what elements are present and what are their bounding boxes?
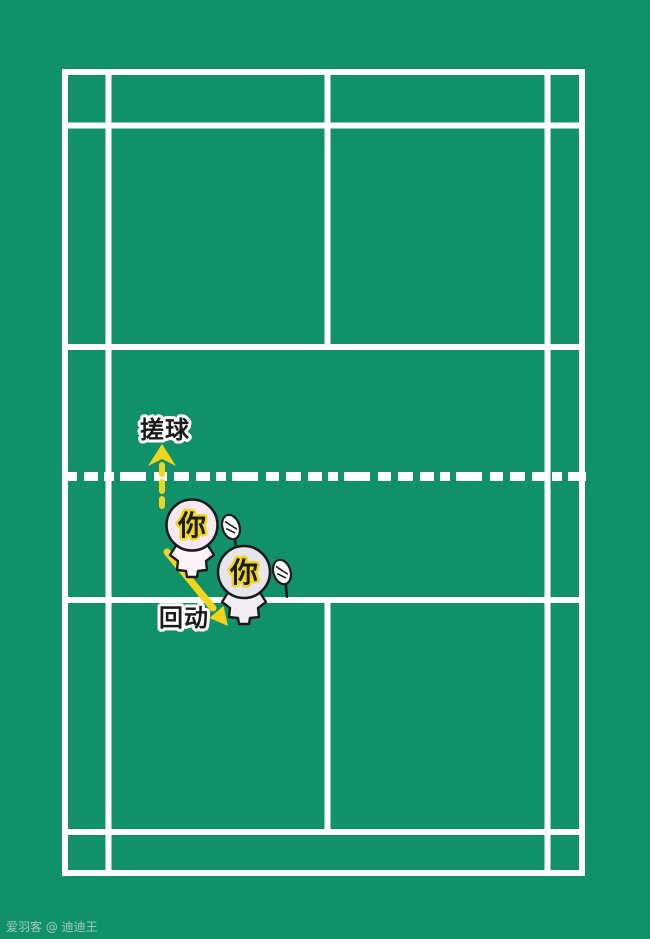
player-end-label: 你	[229, 556, 258, 589]
badminton-court-diagram: 你 你 搓球 回动 爱羽客 @ 迪迪王	[0, 0, 650, 939]
player-start-label: 你	[177, 509, 206, 542]
badminton-court-scene: 你 你 搓球 回动 爱羽客 @ 迪迪王	[0, 0, 650, 939]
drop-shot-label: 搓球	[140, 416, 190, 444]
recover-label: 回动	[159, 604, 209, 632]
watermark: 爱羽客 @ 迪迪王	[6, 919, 98, 934]
